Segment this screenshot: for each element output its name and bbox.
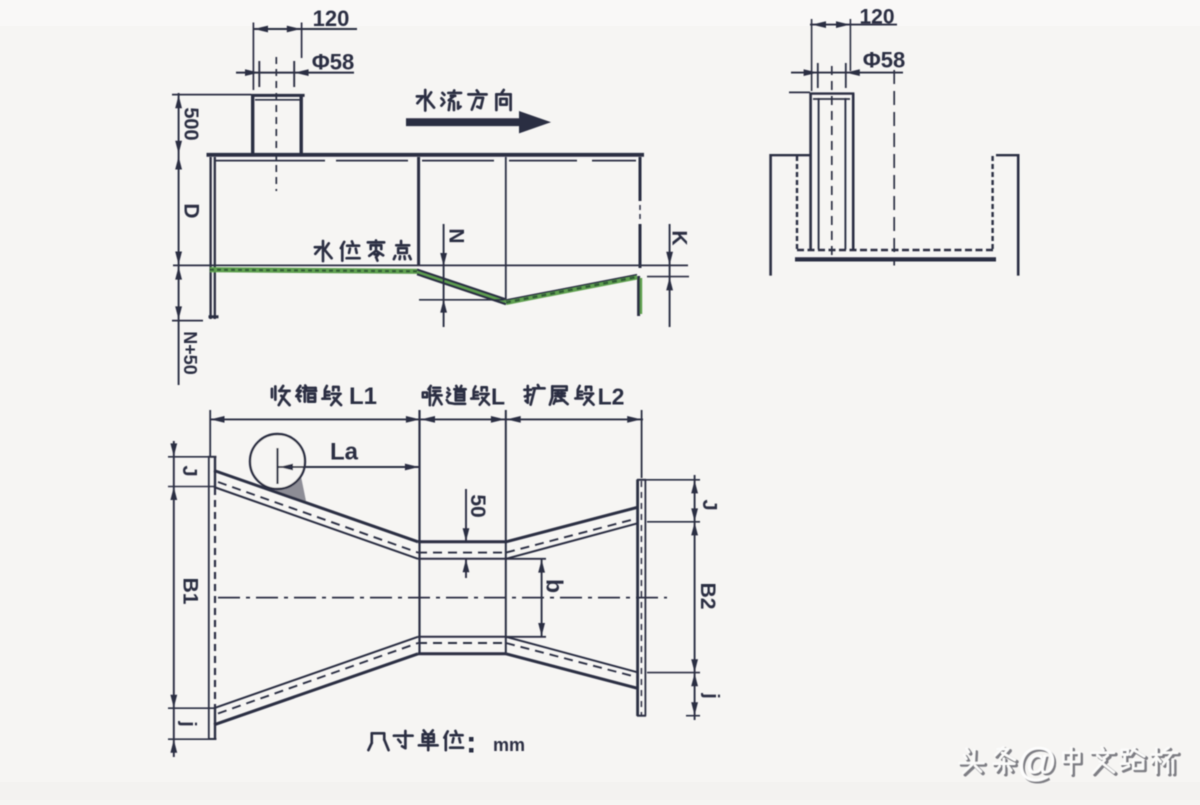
svg-text:j: j	[700, 692, 722, 699]
svg-text:B2: B2	[696, 583, 719, 610]
svg-text:N: N	[445, 228, 468, 243]
svg-text:L1: L1	[349, 383, 377, 410]
svg-text:D: D	[180, 203, 203, 218]
svg-text:L2: L2	[598, 384, 625, 410]
svg-text:50: 50	[466, 494, 489, 517]
svg-text:j: j	[177, 720, 199, 727]
svg-text:120: 120	[313, 6, 350, 31]
svg-text:J: J	[178, 465, 200, 476]
svg-text:K: K	[668, 230, 691, 245]
svg-text:L: L	[491, 384, 505, 410]
svg-text:N+50: N+50	[180, 331, 200, 375]
svg-text:Φ58: Φ58	[312, 50, 355, 75]
svg-text:mm: mm	[493, 735, 525, 755]
svg-text:J: J	[698, 499, 720, 510]
svg-text:120: 120	[859, 6, 894, 29]
svg-text:500: 500	[180, 107, 202, 140]
svg-text:Φ58: Φ58	[863, 48, 906, 73]
svg-text:@: @	[1017, 740, 1056, 784]
svg-text:b: b	[542, 579, 568, 593]
svg-text:La: La	[330, 439, 359, 466]
svg-text:B1: B1	[179, 578, 202, 605]
